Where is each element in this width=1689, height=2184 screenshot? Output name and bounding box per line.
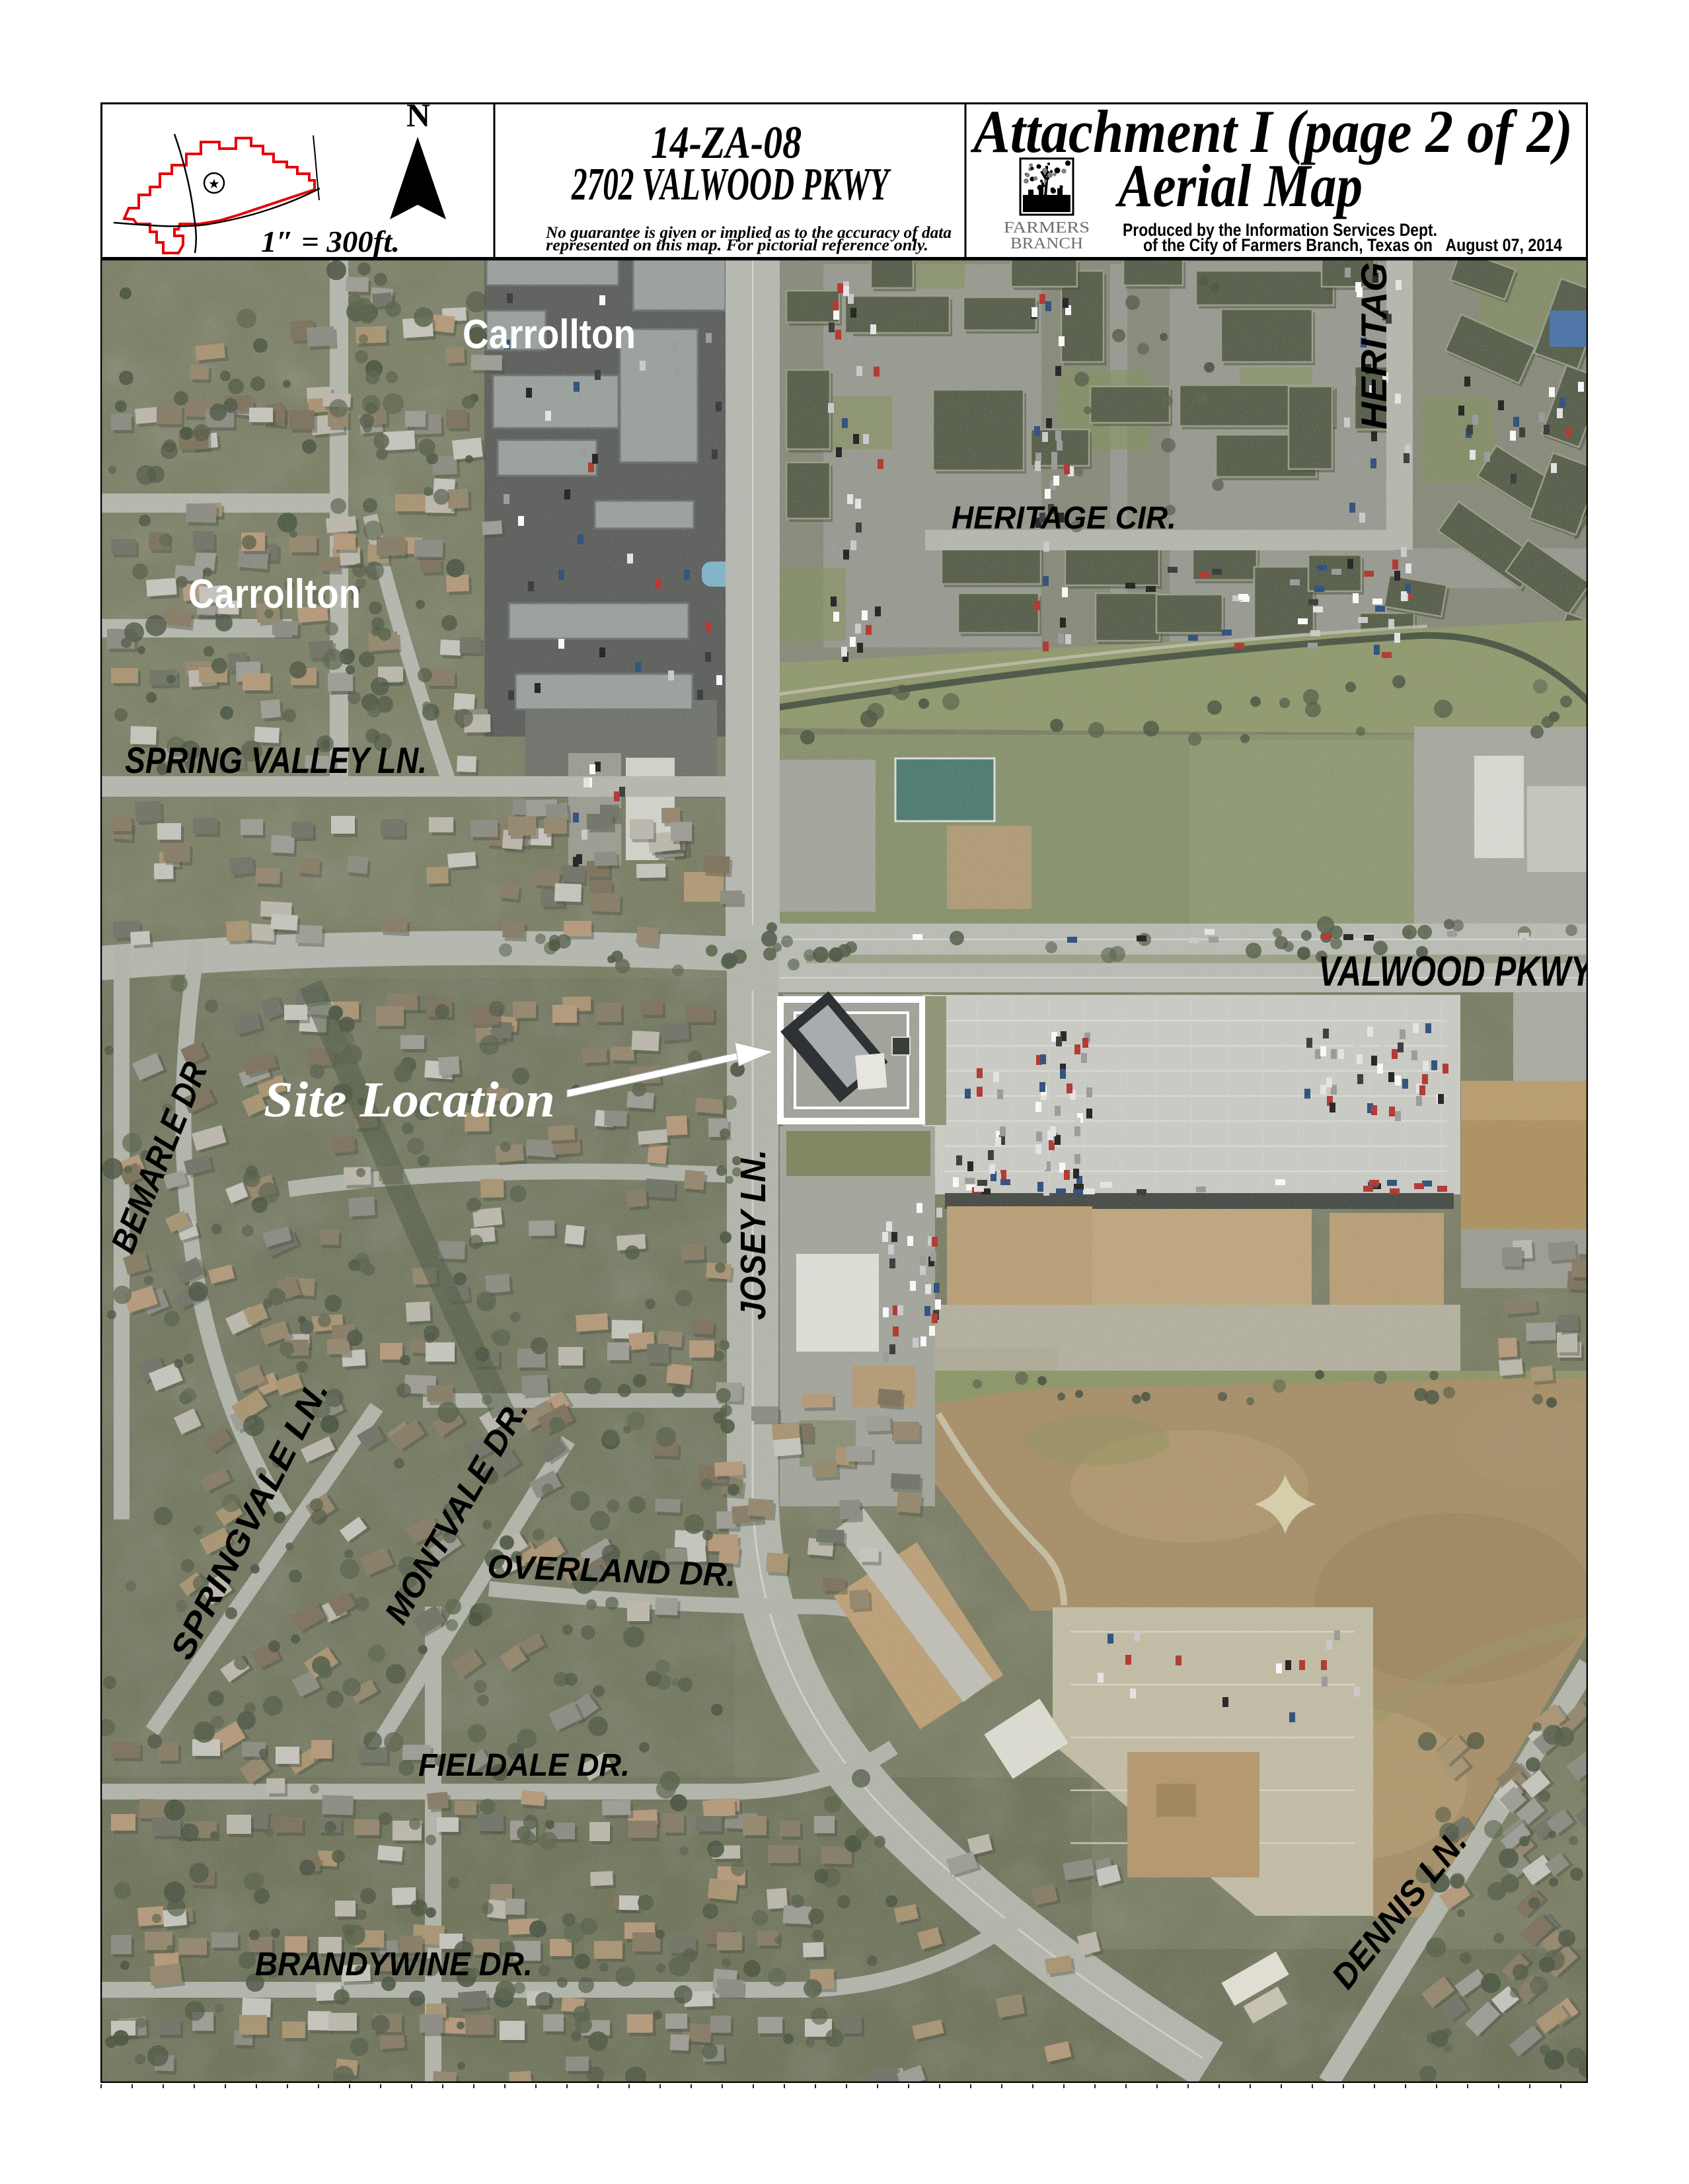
svg-text:BRANDYWINE DR.: BRANDYWINE DR. [255, 1946, 533, 1983]
svg-text:2702 VALWOOD PKWY: 2702 VALWOOD PKWY [571, 159, 891, 210]
svg-text:Site Location: Site Location [264, 1072, 555, 1128]
svg-text:HERITAGE CIR.: HERITAGE CIR. [952, 501, 1176, 536]
svg-text:HERITAG: HERITAG [1353, 262, 1394, 429]
svg-text:BRANCH: BRANCH [1010, 235, 1083, 252]
svg-text:1″ = 300ft.: 1″ = 300ft. [261, 225, 400, 258]
svg-text:N: N [406, 102, 430, 133]
svg-text:FARMERS: FARMERS [1004, 219, 1090, 237]
svg-text:FIELDALE DR.: FIELDALE DR. [418, 1748, 630, 1783]
svg-text:Aerial Map: Aerial Map [1115, 152, 1363, 219]
svg-text:★: ★ [208, 177, 220, 192]
svg-text:of the City of Farmers Branch,: of the City of Farmers Branch, Texas on … [1143, 235, 1562, 255]
svg-text:Carrollton: Carrollton [188, 571, 361, 617]
svg-text:represented on this map. For p: represented on this map. For pictorial r… [546, 237, 928, 254]
svg-text:JOSEY LN.: JOSEY LN. [733, 1149, 773, 1320]
svg-text:SPRING VALLEY LN.: SPRING VALLEY LN. [125, 739, 427, 781]
svg-text:VALWOOD PKWY: VALWOOD PKWY [1318, 947, 1588, 995]
svg-text:Carrollton: Carrollton [463, 312, 636, 357]
